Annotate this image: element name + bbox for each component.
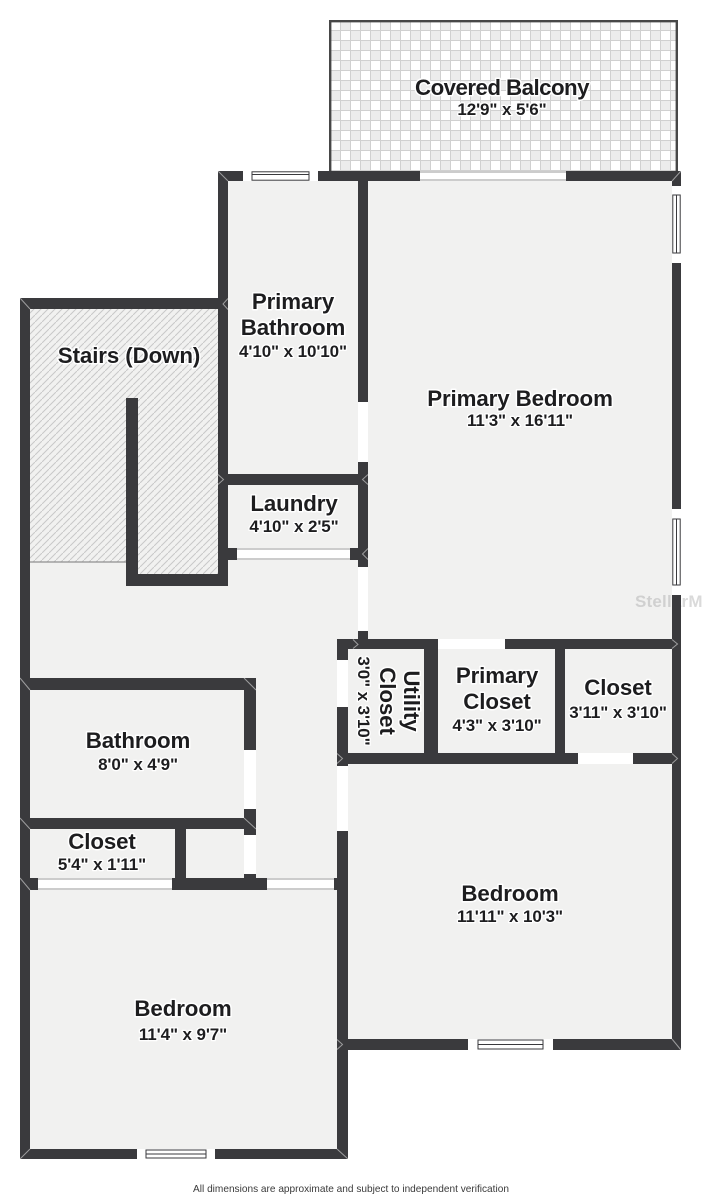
svg-text:8'0" x 4'9": 8'0" x 4'9" <box>98 755 178 774</box>
svg-text:4'3" x 3'10": 4'3" x 3'10" <box>452 716 541 735</box>
svg-text:Closet: Closet <box>463 689 531 714</box>
svg-text:11'3" x 16'11": 11'3" x 16'11" <box>467 411 573 430</box>
svg-text:4'10" x 2'5": 4'10" x 2'5" <box>249 517 338 536</box>
svg-text:All dimensions are approximate: All dimensions are approximate and subje… <box>193 1184 509 1195</box>
svg-text:Primary Bedroom: Primary Bedroom <box>427 386 613 411</box>
svg-text:12'9" x 5'6": 12'9" x 5'6" <box>457 100 546 119</box>
svg-text:Stairs (Down): Stairs (Down) <box>58 343 200 368</box>
svg-text:Bathroom: Bathroom <box>86 728 191 753</box>
svg-text:Closet: Closet <box>68 829 136 854</box>
svg-text:Utility: Utility <box>399 670 424 732</box>
svg-text:Closet: Closet <box>375 667 400 735</box>
svg-text:Closet: Closet <box>584 675 652 700</box>
svg-text:3'0" x 3'10": 3'0" x 3'10" <box>354 656 373 745</box>
svg-text:Primary: Primary <box>252 289 335 314</box>
svg-text:Laundry: Laundry <box>250 491 338 516</box>
svg-text:4'10" x 10'10": 4'10" x 10'10" <box>239 342 347 361</box>
svg-text:Covered Balcony: Covered Balcony <box>415 75 590 100</box>
svg-text:Bedroom: Bedroom <box>134 996 231 1021</box>
svg-text:5'4" x 1'11": 5'4" x 1'11" <box>58 855 146 874</box>
svg-text:Bathroom: Bathroom <box>241 315 346 340</box>
svg-text:Bedroom: Bedroom <box>461 881 558 906</box>
svg-text:3'11" x 3'10": 3'11" x 3'10" <box>569 703 667 722</box>
svg-text:StellarMLS: StellarMLS <box>635 592 702 611</box>
svg-text:11'11" x 10'3": 11'11" x 10'3" <box>457 907 563 926</box>
svg-text:Primary: Primary <box>456 663 539 688</box>
svg-text:11'4" x 9'7": 11'4" x 9'7" <box>139 1025 227 1044</box>
